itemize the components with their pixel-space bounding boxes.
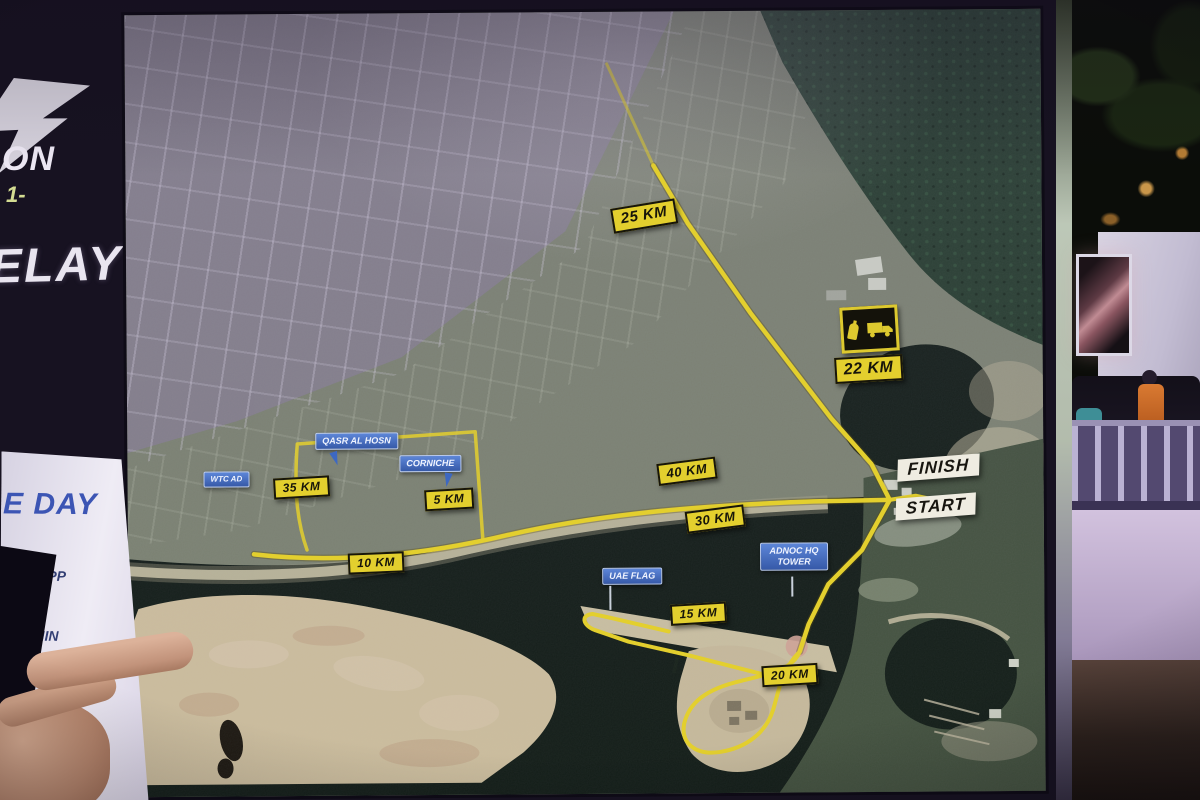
- satellite-route-map: 25 KM 22 KM 40 KM 30 KM 35 KM 5 KM 10 KM…: [124, 9, 1045, 797]
- km-marker-22km: 22 KM: [834, 354, 903, 384]
- km-marker-10km: 10 KM: [348, 551, 405, 574]
- landmark-adnoc-hq-tower: ADNOC HQ TOWER: [760, 542, 828, 570]
- bottle-icon: [844, 318, 861, 343]
- label-pole: [791, 577, 793, 597]
- landmark-uae-flag: UAE FLAG: [602, 567, 662, 584]
- truck-icon: [865, 318, 894, 339]
- light-ground: [1072, 510, 1200, 660]
- race-route-line: [124, 9, 1045, 797]
- palm-trees: [1072, 0, 1200, 255]
- km-marker-15km: 15 KM: [670, 602, 727, 626]
- person-head: [1142, 370, 1157, 385]
- km-marker-5km: 5 KM: [424, 488, 474, 512]
- route-map-board: ON 1- ELAY E DAY SH APP THIN E TIME: [0, 0, 1072, 800]
- km-marker-20km: 20 KM: [761, 663, 818, 687]
- photo-of-marathon-route-board: ON 1- ELAY E DAY SH APP THIN E TIME: [0, 0, 1200, 800]
- landmark-qasr-al-hosn: QASR AL HOSN: [315, 432, 398, 449]
- landmark-wtc-ad: WTC AD: [203, 471, 249, 487]
- video-screen: [1076, 254, 1132, 356]
- aid-station-box: [839, 304, 900, 353]
- relay-title-fragment: ELAY: [0, 236, 123, 294]
- background-scene: [1072, 0, 1200, 800]
- landmark-line: ADNOC HQ: [767, 545, 821, 556]
- flag-pole: [609, 586, 611, 610]
- dark-floor: [1072, 660, 1200, 800]
- poster-heading: E DAY: [3, 487, 98, 522]
- railing-bars: [1072, 426, 1200, 501]
- landmark-corniche: CORNICHE: [399, 455, 461, 472]
- event-logo-year-fragment: 1-: [6, 182, 26, 208]
- railing-fence: [1072, 420, 1200, 510]
- event-logo-text-fragment: ON: [2, 140, 55, 179]
- landmark-line: TOWER: [767, 556, 821, 567]
- board-side-edge: [1056, 0, 1072, 800]
- km-marker-35km: 35 KM: [273, 475, 330, 499]
